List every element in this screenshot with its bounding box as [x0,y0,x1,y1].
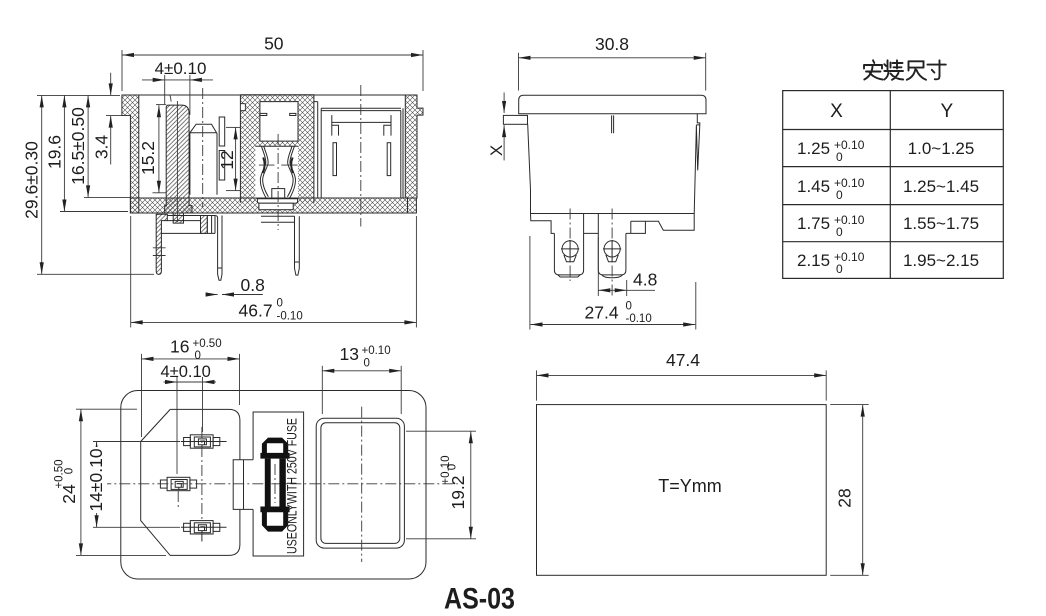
svg-text:-0.10: -0.10 [626,313,652,325]
svg-text:T=Ymm: T=Ymm [658,476,722,496]
svg-text:AS-03: AS-03 [444,583,515,616]
svg-text:19.6: 19.6 [45,135,65,169]
svg-text:1.45: 1.45 [797,177,830,196]
svg-text:1.75: 1.75 [797,214,830,233]
svg-text:0: 0 [836,150,843,164]
svg-text:29.6±0.30: 29.6±0.30 [21,141,41,219]
svg-text:46.7: 46.7 [239,301,273,321]
svg-text:0: 0 [277,298,283,310]
svg-text:27.4: 27.4 [585,302,619,322]
svg-text:0: 0 [836,262,843,276]
svg-text:16: 16 [170,337,189,357]
svg-text:1.25: 1.25 [797,139,830,158]
svg-text:0: 0 [836,188,843,202]
svg-text:13: 13 [340,344,359,364]
svg-text:0: 0 [447,464,459,470]
svg-text:USEONLYWITH 250V FUSE: USEONLYWITH 250V FUSE [285,418,301,554]
svg-text:2.15: 2.15 [797,251,830,270]
svg-text:4.8: 4.8 [633,270,657,290]
svg-text:X: X [487,145,506,156]
svg-text:Y: Y [940,101,953,122]
svg-text:1.25~1.45: 1.25~1.45 [903,177,979,196]
svg-text:1.95~2.15: 1.95~2.15 [903,251,979,270]
svg-text:1.0~1.25: 1.0~1.25 [908,139,975,158]
svg-text:0.8: 0.8 [241,275,265,295]
svg-text:15.2: 15.2 [138,141,158,175]
svg-text:0: 0 [195,350,201,362]
svg-text:30.8: 30.8 [595,34,629,54]
svg-text:4±0.10: 4±0.10 [155,59,207,78]
svg-text:0: 0 [836,225,843,239]
svg-text:0: 0 [364,357,370,369]
svg-text:1.55~1.75: 1.55~1.75 [903,214,979,233]
svg-text:0: 0 [626,301,632,313]
svg-text:16.5±0.50: 16.5±0.50 [68,107,88,185]
svg-text:+0.50: +0.50 [193,338,222,350]
svg-text:-0.10: -0.10 [277,310,303,322]
svg-text:X: X [830,101,843,122]
svg-text:14±0.10: 14±0.10 [86,448,106,511]
svg-text:28: 28 [835,488,855,507]
svg-text:12: 12 [217,150,237,169]
svg-text:0: 0 [63,468,75,474]
svg-text:50: 50 [264,34,284,54]
svg-text:4±0.10: 4±0.10 [161,363,211,381]
svg-text:+0.10: +0.10 [362,345,391,357]
svg-text:47.4: 47.4 [666,350,700,370]
svg-text:3.4: 3.4 [92,135,112,160]
